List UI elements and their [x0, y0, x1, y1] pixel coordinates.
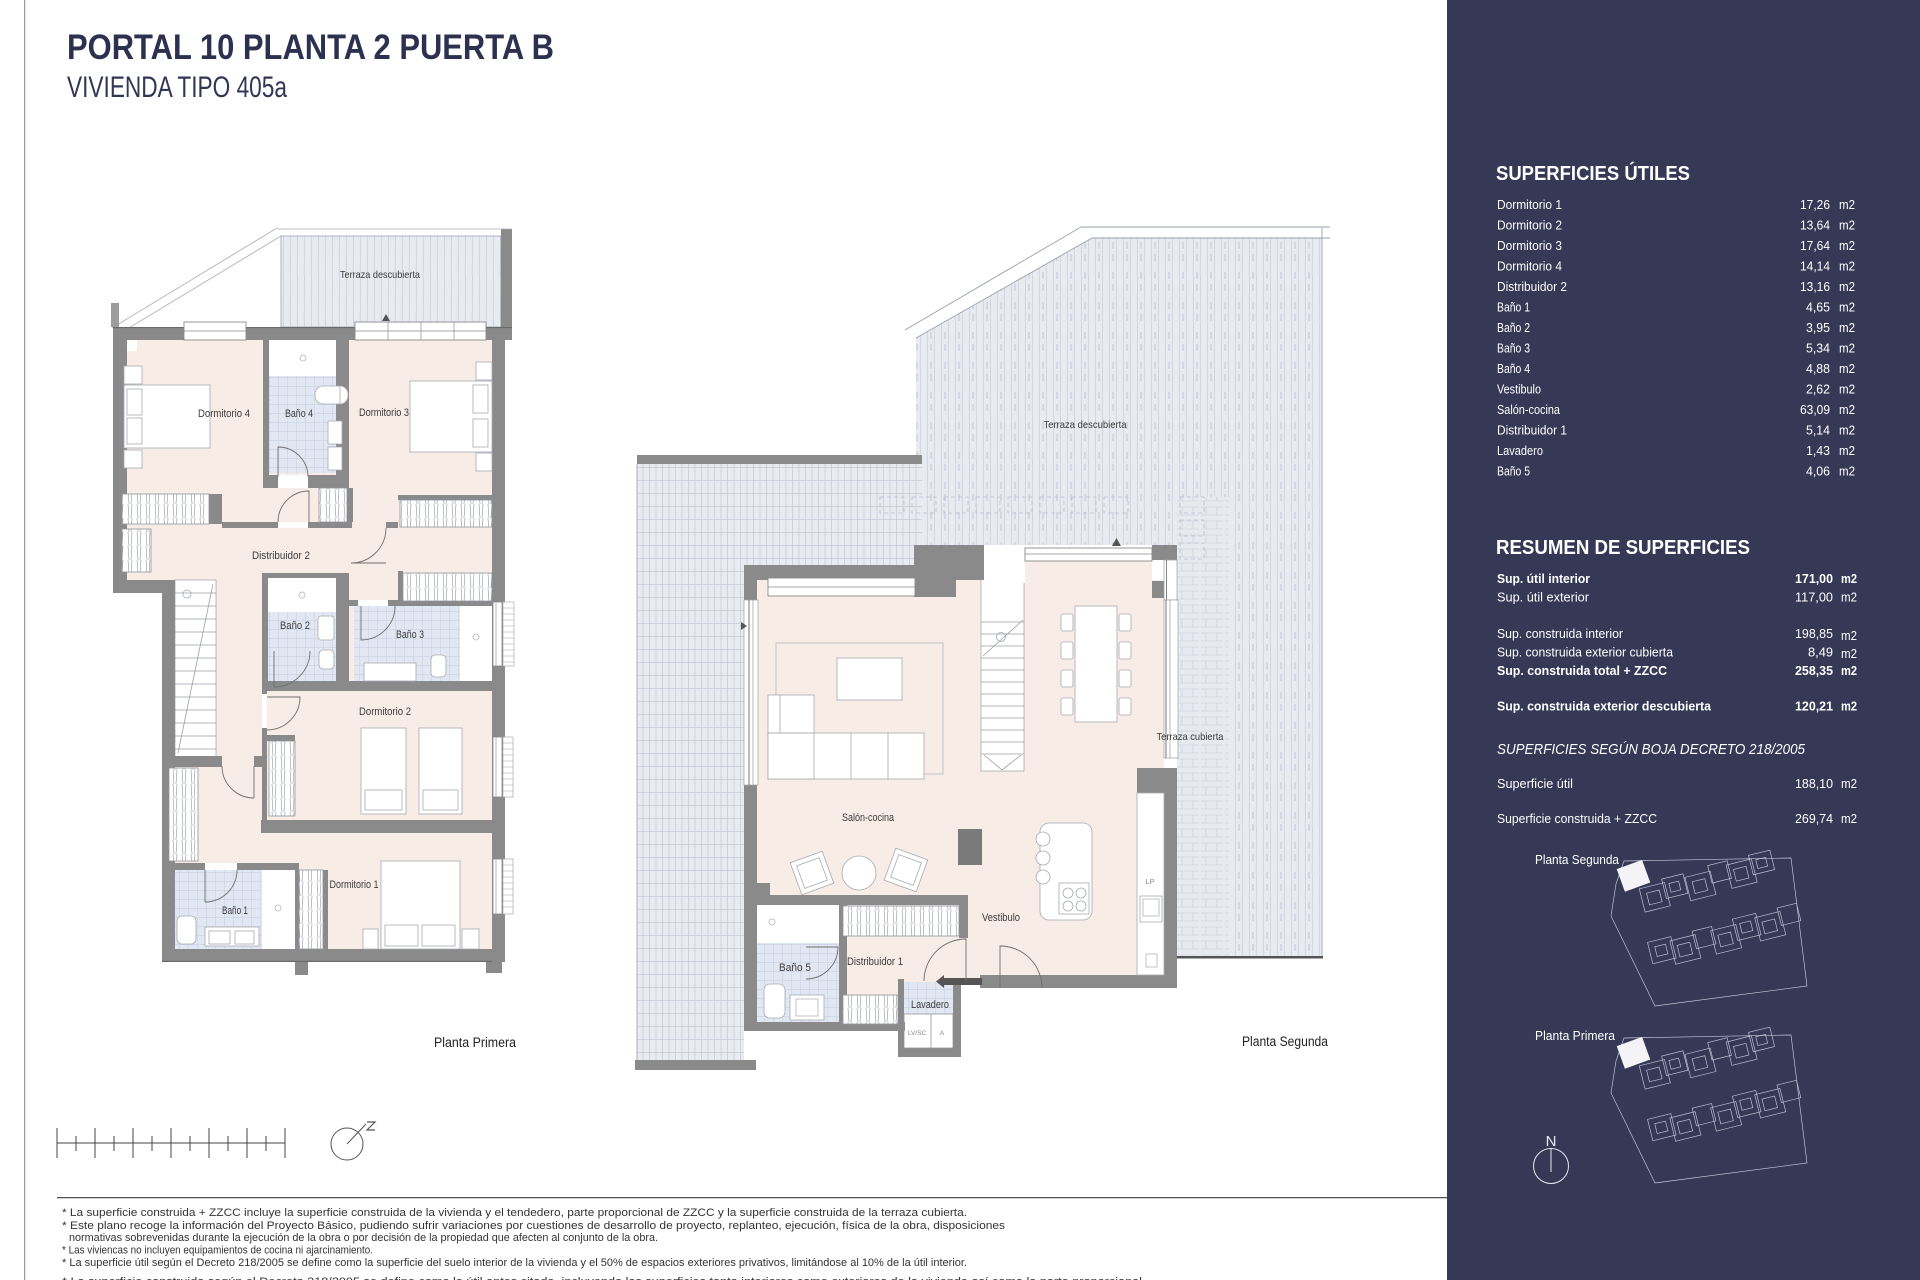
svg-text:m2: m2: [1839, 423, 1855, 438]
svg-text:Baño 4: Baño 4: [1497, 361, 1530, 376]
svg-text:PORTAL 10 PLANTA 2 PUERTA B: PORTAL 10 PLANTA 2 PUERTA B: [67, 28, 554, 67]
svg-text:Dormitorio 1: Dormitorio 1: [330, 879, 379, 891]
svg-text:normativas sobrevenidas durant: normativas sobrevenidas durante la ejecu…: [69, 1232, 658, 1244]
svg-text:RESUMEN DE SUPERFICIES: RESUMEN DE SUPERFICIES: [1496, 537, 1750, 559]
svg-text:1,43: 1,43: [1806, 443, 1830, 458]
svg-text:Terraza descubierta: Terraza descubierta: [340, 269, 420, 281]
svg-text:m2: m2: [1839, 218, 1855, 233]
svg-text:4,88: 4,88: [1806, 361, 1830, 376]
svg-text:17,64: 17,64: [1800, 238, 1830, 253]
svg-text:LV/SC: LV/SC: [908, 1030, 927, 1037]
svg-text:Sup. construida total + ZZCC: Sup. construida total + ZZCC: [1497, 663, 1667, 678]
svg-text:m2: m2: [1839, 320, 1855, 335]
svg-text:120,21: 120,21: [1795, 699, 1833, 714]
svg-text:Sup. construida exterior descu: Sup. construida exterior descubierta: [1497, 699, 1712, 714]
svg-text:63,09: 63,09: [1800, 402, 1830, 417]
svg-text:Salón-cocina: Salón-cocina: [1497, 402, 1561, 417]
svg-text:5,14: 5,14: [1806, 423, 1830, 438]
svg-text:m2: m2: [1839, 300, 1855, 315]
svg-text:Baño 1: Baño 1: [1497, 300, 1530, 315]
svg-text:VIVIENDA TIPO 405a: VIVIENDA TIPO 405a: [67, 71, 287, 104]
svg-text:2,62: 2,62: [1806, 382, 1830, 397]
svg-text:Planta Primera: Planta Primera: [434, 1035, 516, 1050]
svg-text:Terraza cubierta: Terraza cubierta: [1157, 731, 1224, 743]
svg-text:Salón-cocina: Salón-cocina: [842, 812, 895, 824]
svg-text:Lavadero: Lavadero: [911, 999, 949, 1011]
svg-text:8,49: 8,49: [1808, 645, 1833, 660]
svg-text:Superficie útil: Superficie útil: [1497, 776, 1573, 791]
svg-text:* La superficie útil según el: * La superficie útil según el Decreto 21…: [62, 1257, 967, 1269]
svg-text:* La superficie construida seg: * La superficie construida según el Decr…: [62, 1276, 1142, 1280]
svg-text:13,64: 13,64: [1800, 218, 1830, 233]
svg-text:Terraza descubierta: Terraza descubierta: [1044, 419, 1127, 431]
svg-text:Sup. construida exterior cubie: Sup. construida exterior cubierta: [1497, 645, 1674, 660]
svg-text:3,95: 3,95: [1806, 320, 1830, 335]
svg-text:m2: m2: [1839, 443, 1855, 458]
svg-text:Baño 1: Baño 1: [222, 905, 248, 917]
svg-text:* Este plano recoge la informa: * Este plano recoge la información del P…: [62, 1220, 1006, 1232]
svg-text:17,26: 17,26: [1800, 197, 1830, 212]
svg-text:Dormitorio 4: Dormitorio 4: [198, 408, 250, 420]
svg-text:Planta Segunda: Planta Segunda: [1535, 852, 1620, 867]
svg-text:m2: m2: [1841, 811, 1857, 826]
svg-text:Dormitorio 2: Dormitorio 2: [359, 706, 411, 718]
svg-text:A: A: [940, 1030, 945, 1037]
svg-text:Baño 2: Baño 2: [280, 620, 310, 632]
svg-text:Distribuidor 1: Distribuidor 1: [847, 956, 903, 968]
svg-text:Baño 3: Baño 3: [396, 629, 424, 641]
svg-text:14,14: 14,14: [1800, 259, 1830, 274]
svg-text:5,34: 5,34: [1806, 341, 1830, 356]
svg-text:m2: m2: [1841, 663, 1857, 678]
svg-text:171,00: 171,00: [1795, 571, 1833, 586]
svg-text:Superficie construida + ZZCC: Superficie construida + ZZCC: [1497, 811, 1657, 826]
svg-text:Dormitorio 1: Dormitorio 1: [1497, 197, 1562, 212]
svg-text:Baño 3: Baño 3: [1497, 341, 1530, 356]
svg-text:4,06: 4,06: [1806, 464, 1830, 479]
svg-text:m2: m2: [1839, 259, 1855, 274]
svg-text:Dormitorio 2: Dormitorio 2: [1497, 218, 1562, 233]
svg-text:m2: m2: [1839, 238, 1855, 253]
svg-text:Sup. útil interior: Sup. útil interior: [1497, 571, 1590, 586]
svg-text:m2: m2: [1839, 361, 1855, 376]
svg-text:Baño 5: Baño 5: [779, 962, 811, 974]
svg-text:m2: m2: [1839, 279, 1855, 294]
svg-text:LP: LP: [1145, 877, 1154, 886]
svg-text:Vestibulo: Vestibulo: [982, 912, 1020, 924]
svg-text:Baño 5: Baño 5: [1497, 464, 1530, 479]
svg-text:Vestibulo: Vestibulo: [1497, 382, 1541, 397]
svg-text:Planta Segunda: Planta Segunda: [1242, 1034, 1328, 1049]
svg-text:m2: m2: [1839, 402, 1855, 417]
svg-text:Dormitorio 3: Dormitorio 3: [359, 407, 409, 419]
svg-text:SUPERFICIES SEGÚN BOJA DECRETO: SUPERFICIES SEGÚN BOJA DECRETO 218/2005: [1497, 741, 1806, 758]
svg-text:Dormitorio 3: Dormitorio 3: [1497, 238, 1562, 253]
svg-text:m2: m2: [1841, 646, 1857, 661]
svg-text:13,16: 13,16: [1800, 279, 1830, 294]
svg-text:N: N: [1546, 1133, 1557, 1150]
svg-text:m2: m2: [1841, 628, 1857, 643]
svg-text:m2: m2: [1841, 699, 1857, 714]
svg-text:Lavadero: Lavadero: [1497, 443, 1543, 458]
svg-text:Baño 2: Baño 2: [1497, 320, 1530, 335]
svg-text:* La superficie construida + Z: * La superficie construida + ZZCC incluy…: [62, 1207, 967, 1219]
svg-text:Sup. útil exterior: Sup. útil exterior: [1497, 590, 1590, 605]
svg-text:m2: m2: [1839, 341, 1855, 356]
svg-text:Distribuidor 2: Distribuidor 2: [252, 550, 310, 562]
svg-text:198,85: 198,85: [1795, 626, 1833, 641]
svg-text:m2: m2: [1839, 464, 1855, 479]
svg-text:Sup. construida interior: Sup. construida interior: [1497, 626, 1624, 641]
svg-text:* Las viviencas no incluyen eq: * Las viviencas no incluyen equipamiento…: [62, 1245, 373, 1257]
svg-text:m2: m2: [1839, 382, 1855, 397]
svg-text:Distribuidor 2: Distribuidor 2: [1497, 279, 1567, 294]
svg-text:Dormitorio 4: Dormitorio 4: [1497, 259, 1562, 274]
svg-text:258,35: 258,35: [1795, 663, 1833, 678]
svg-text:4,65: 4,65: [1806, 300, 1830, 315]
svg-text:Distribuidor 1: Distribuidor 1: [1497, 423, 1567, 438]
svg-text:Baño 4: Baño 4: [285, 408, 313, 420]
svg-text:Planta Primera: Planta Primera: [1535, 1028, 1616, 1043]
svg-text:m2: m2: [1841, 776, 1857, 791]
svg-text:117,00: 117,00: [1795, 590, 1833, 605]
svg-text:SUPERFICIES ÚTILES: SUPERFICIES ÚTILES: [1496, 161, 1690, 185]
svg-text:m2: m2: [1841, 590, 1857, 605]
svg-text:188,10: 188,10: [1795, 776, 1833, 791]
svg-text:269,74: 269,74: [1795, 811, 1833, 826]
svg-text:m2: m2: [1839, 197, 1855, 212]
svg-text:m2: m2: [1841, 571, 1857, 586]
